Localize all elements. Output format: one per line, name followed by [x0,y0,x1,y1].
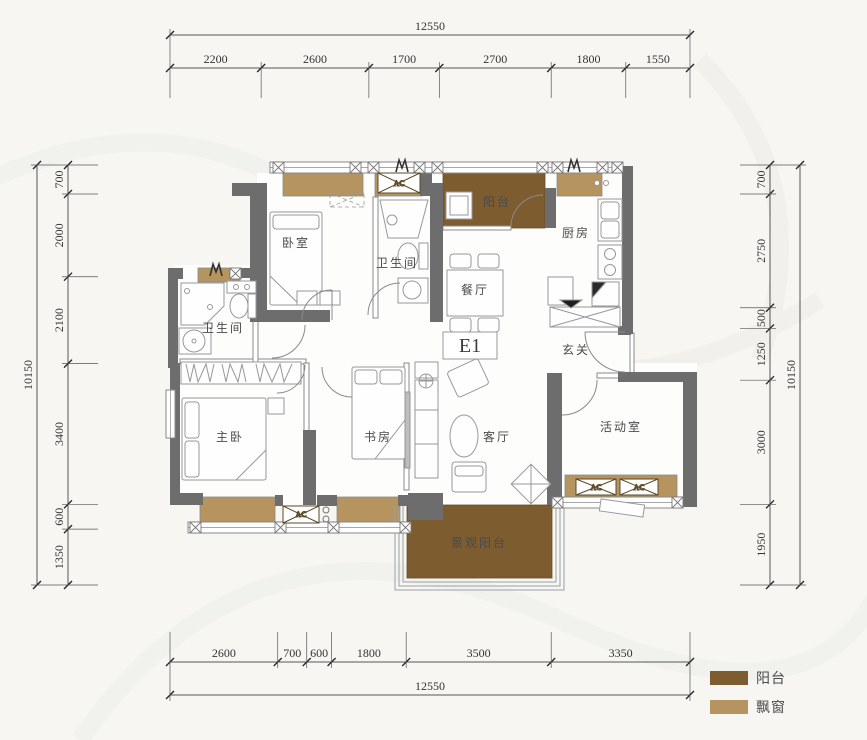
svg-text:600: 600 [310,646,328,660]
legend-label-bay-window: 飘窗 [756,697,786,717]
svg-text:12550: 12550 [415,19,445,33]
room-label-living: 客厅 [483,429,511,444]
room-label-dining: 餐厅 [461,282,489,297]
room-label-kitchen: 厨房 [562,225,590,240]
legend-item-balcony: 阳台 [710,668,786,688]
room-label-activity: 活动室 [600,419,642,434]
ac-unit-box: AC [378,173,420,193]
svg-text:600: 600 [52,508,66,526]
legend: 阳台 飘窗 [710,668,786,717]
room-label-bathroom-upper: 卫生间 [376,256,418,270]
svg-text:700: 700 [52,170,66,188]
svg-text:3400: 3400 [52,422,66,446]
ac-unit-box: AC [620,479,658,495]
svg-text:2000: 2000 [52,223,66,247]
svg-text:1700: 1700 [392,52,416,66]
room-label-bedroom: 卧室 [282,235,310,250]
svg-text:2700: 2700 [483,52,507,66]
svg-text:10150: 10150 [784,360,798,390]
room-label-bathroom-lower: 卫生间 [202,321,244,335]
ac-label: AC [633,483,644,492]
svg-text:2100: 2100 [52,308,66,332]
svg-text:2600: 2600 [212,646,236,660]
room-label-study: 书房 [364,429,392,444]
svg-text:10150: 10150 [21,360,35,390]
svg-text:700: 700 [283,646,301,660]
svg-text:1550: 1550 [646,52,670,66]
dimension-left: 101507002000210034006001350 [21,161,98,589]
svg-text:2200: 2200 [204,52,228,66]
room-label-master: 主卧 [216,430,244,444]
svg-text:12550: 12550 [415,679,445,693]
dimension-top: 12550220026001700270018001550 [166,19,694,98]
svg-text:1950: 1950 [754,533,768,557]
ac-label: AC [295,510,306,519]
floor-plan-svg: AC AC AC AC [0,0,867,740]
svg-text:3350: 3350 [609,646,633,660]
ac-unit-box: AC [283,506,329,523]
svg-text:2600: 2600 [303,52,327,66]
svg-text:500: 500 [754,309,768,327]
ac-label: AC [393,179,404,188]
ac-label: AC [590,483,601,492]
bay-window-master [200,497,275,525]
svg-text:1350: 1350 [52,545,66,569]
washing-machine [446,192,472,219]
study-furniture [352,367,405,459]
unit-label-box: E1 [443,332,497,359]
legend-swatch-balcony [710,671,748,685]
floor-plan: AC AC AC AC [166,160,697,590]
bay-window-bedroom [283,172,363,196]
ac-unit-box: AC [576,479,616,495]
room-label-foyer: 玄关 [562,342,590,357]
svg-text:700: 700 [754,170,768,188]
svg-text:2750: 2750 [754,239,768,263]
svg-text:3000: 3000 [754,430,768,454]
svg-text:1250: 1250 [754,342,768,366]
legend-item-bay-window: 飘窗 [710,697,786,717]
bay-window-study [337,497,400,525]
legend-label-balcony: 阳台 [756,668,786,688]
room-label-balcony-top: 阳台 [483,194,511,209]
room-label-view-balcony: 景观阳台 [451,535,507,550]
legend-swatch-bay-window [710,700,748,714]
svg-text:1800: 1800 [357,646,381,660]
svg-text:1800: 1800 [576,52,600,66]
svg-text:3500: 3500 [467,646,491,660]
unit-label: E1 [459,335,481,357]
